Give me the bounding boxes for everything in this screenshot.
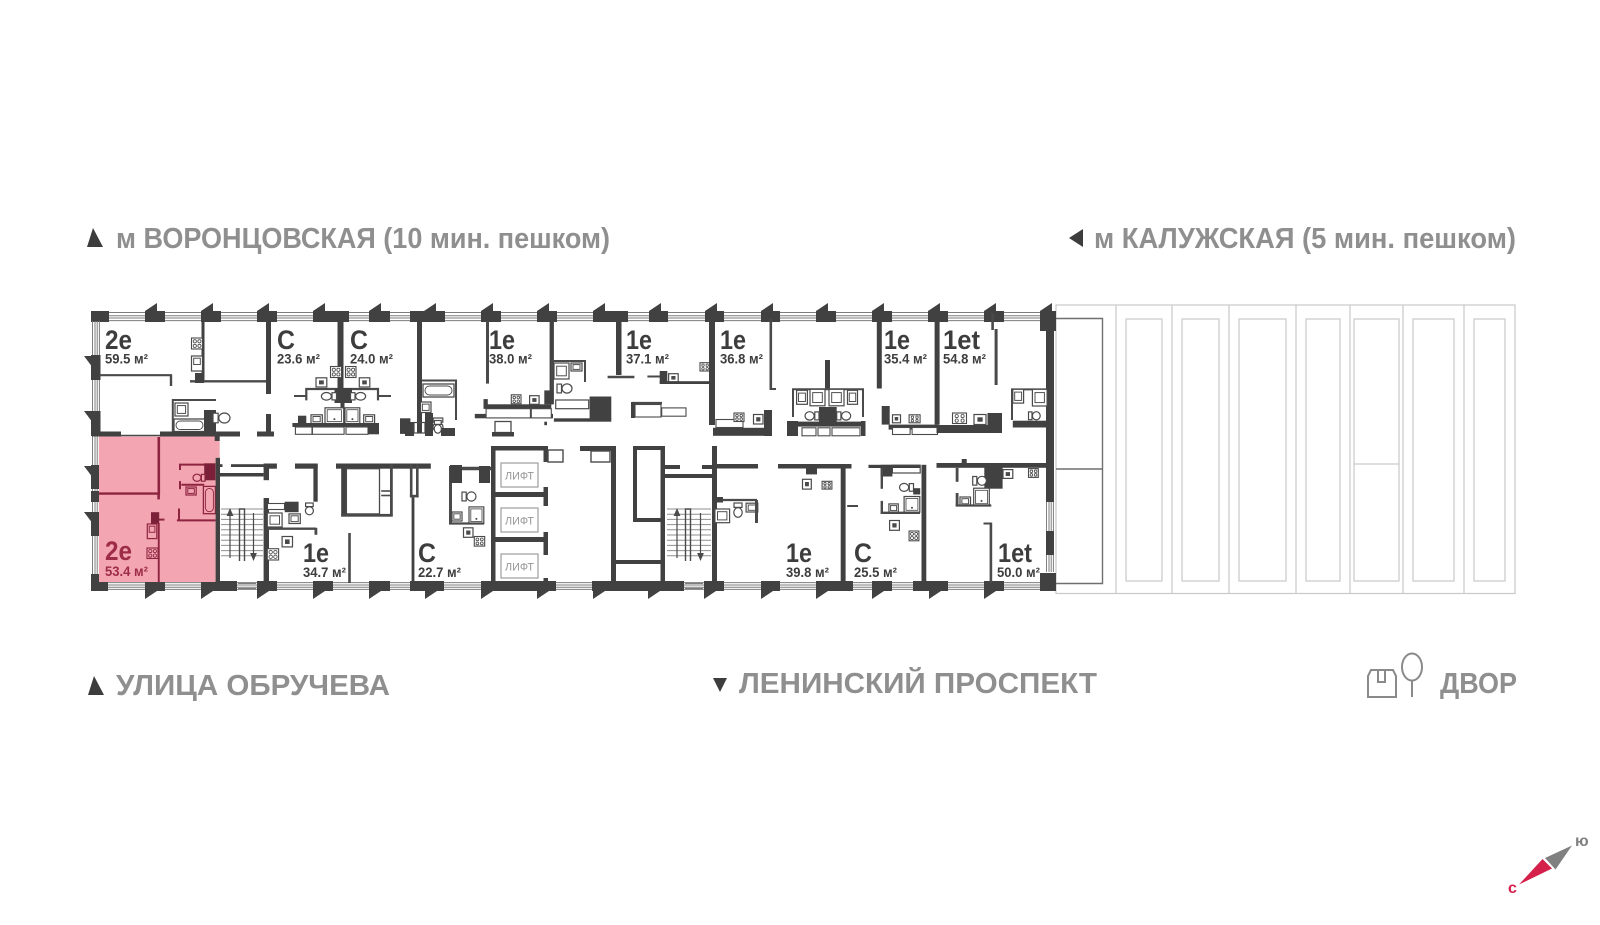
svg-text:ДВОР: ДВОР <box>1440 668 1517 700</box>
svg-text:34.7 м²: 34.7 м² <box>303 565 346 580</box>
svg-text:м ВОРОНЦОВСКАЯ (10 мин. пешко: м ВОРОНЦОВСКАЯ (10 мин. пешком) <box>116 223 610 255</box>
svg-text:ю: ю <box>1575 833 1589 850</box>
svg-text:50.0 м²: 50.0 м² <box>997 565 1040 580</box>
svg-text:С: С <box>854 538 872 568</box>
svg-text:24.0 м²: 24.0 м² <box>350 352 393 367</box>
svg-text:1et: 1et <box>943 325 980 355</box>
svg-text:2е: 2е <box>105 325 132 355</box>
svg-text:1е: 1е <box>489 325 515 355</box>
svg-text:1е: 1е <box>626 325 652 355</box>
svg-text:1е: 1е <box>303 538 329 568</box>
svg-text:ЛИФТ: ЛИФТ <box>505 516 534 528</box>
svg-text:1et: 1et <box>998 538 1032 568</box>
svg-text:С: С <box>350 325 368 355</box>
svg-text:УЛИЦА ОБРУЧЕВА: УЛИЦА ОБРУЧЕВА <box>116 670 390 702</box>
svg-text:23.6 м²: 23.6 м² <box>277 352 320 367</box>
svg-text:38.0 м²: 38.0 м² <box>489 352 532 367</box>
svg-text:36.8 м²: 36.8 м² <box>720 352 763 367</box>
svg-text:1е: 1е <box>786 538 812 568</box>
svg-text:С: С <box>418 538 436 568</box>
svg-text:25.5 м²: 25.5 м² <box>854 565 897 580</box>
svg-text:ЛЕНИНСКИЙ ПРОСПЕКТ: ЛЕНИНСКИЙ ПРОСПЕКТ <box>739 666 1097 700</box>
svg-text:1е: 1е <box>884 325 910 355</box>
svg-text:53.4 м²: 53.4 м² <box>105 564 148 579</box>
svg-text:ЛИФТ: ЛИФТ <box>505 562 534 574</box>
svg-text:м КАЛУЖСКАЯ (5 мин. пешком): м КАЛУЖСКАЯ (5 мин. пешком) <box>1094 223 1516 255</box>
svg-text:С: С <box>277 325 295 355</box>
svg-text:ЛИФТ: ЛИФТ <box>505 471 534 483</box>
svg-text:22.7 м²: 22.7 м² <box>418 565 461 580</box>
svg-text:2е: 2е <box>105 536 132 566</box>
svg-text:37.1 м²: 37.1 м² <box>626 352 669 367</box>
svg-text:1е: 1е <box>720 325 746 355</box>
svg-text:59.5 м²: 59.5 м² <box>105 352 148 367</box>
svg-text:54.8 м²: 54.8 м² <box>943 352 986 367</box>
svg-text:с: с <box>1508 880 1517 897</box>
svg-text:39.8 м²: 39.8 м² <box>786 565 829 580</box>
svg-text:35.4 м²: 35.4 м² <box>884 352 927 367</box>
